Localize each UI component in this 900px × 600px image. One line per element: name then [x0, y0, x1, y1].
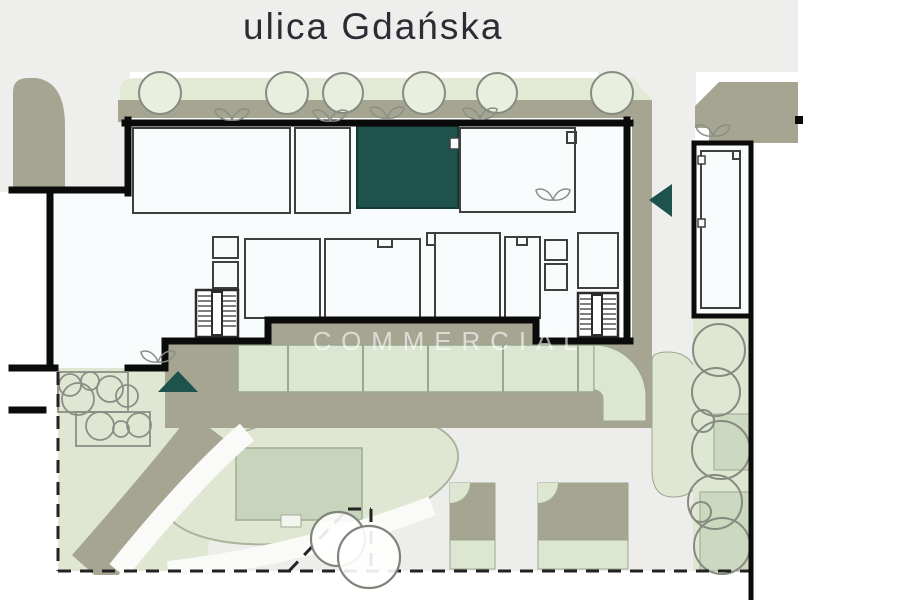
planter — [714, 414, 752, 470]
tree-icon — [266, 72, 308, 114]
parking-stall-apron — [450, 540, 495, 569]
bottom-parking-stalls — [450, 483, 628, 569]
outbuilding — [694, 143, 751, 316]
street-lawn-strip — [120, 78, 652, 100]
playground-pad — [236, 448, 362, 520]
sidewalk-corner-right — [695, 82, 798, 143]
sidewalk-corner-left — [13, 78, 65, 188]
site-plan-drawing — [0, 0, 900, 600]
wall-notch — [698, 156, 705, 164]
tree-icon — [477, 73, 517, 113]
playground-pad-notch — [281, 515, 301, 527]
right-landscape-strip — [693, 318, 752, 571]
watermark-text: COMMERCIAL — [300, 326, 600, 357]
wall-notch — [450, 138, 459, 149]
outbuilding-outline — [694, 143, 751, 316]
tree-icon — [591, 72, 633, 114]
site-plan-screenshot: ulica Gdańska COMMERCIAL — [0, 0, 900, 600]
boundary-tick — [795, 116, 803, 124]
tree-icon — [338, 526, 400, 588]
highlighted-unit[interactable] — [357, 126, 458, 208]
wall-notch — [698, 219, 705, 227]
tree-icon — [139, 72, 181, 114]
parking-stall-apron — [538, 540, 628, 569]
tree-icon — [403, 72, 445, 114]
bottom-margin — [0, 575, 900, 600]
street-name-label: ulica Gdańska — [243, 6, 503, 48]
stairwell-left — [196, 290, 238, 337]
walkway-bottom — [238, 392, 652, 428]
tree-icon — [323, 73, 363, 113]
stair-rail — [212, 292, 222, 335]
